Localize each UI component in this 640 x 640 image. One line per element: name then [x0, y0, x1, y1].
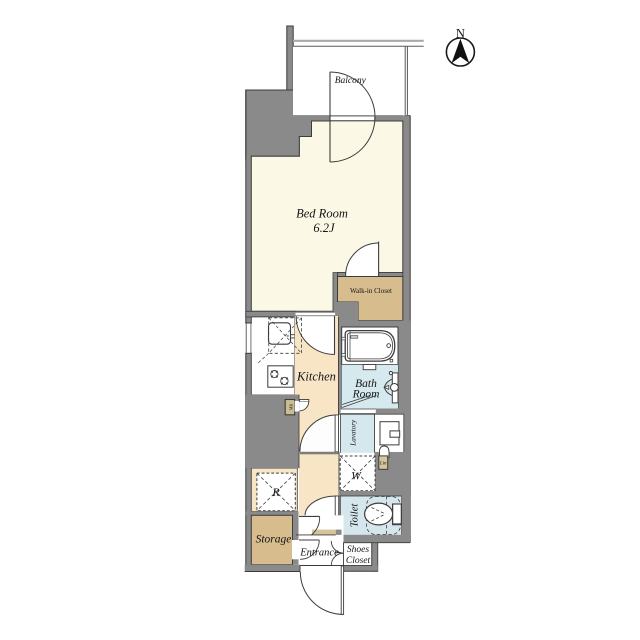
svg-text:R: R: [271, 485, 280, 499]
svg-text:Closet: Closet: [346, 556, 371, 566]
svg-text:Bed Room: Bed Room: [296, 207, 348, 221]
svg-text:Toilet: Toilet: [350, 503, 361, 528]
svg-text:Shoes: Shoes: [347, 545, 369, 555]
svg-text:N: N: [456, 27, 465, 41]
svg-text:W: W: [351, 471, 362, 483]
svg-text:Lavatory: Lavatory: [350, 419, 358, 447]
svg-text:Entrance: Entrance: [299, 548, 339, 559]
svg-text:Walk-in Closet: Walk-in Closet: [350, 287, 392, 295]
svg-text:Balcony: Balcony: [335, 76, 367, 86]
svg-text:Room: Room: [352, 389, 380, 401]
svg-text:Kitchen: Kitchen: [296, 370, 336, 384]
svg-text:6.2J: 6.2J: [313, 221, 336, 235]
svg-text:Storage: Storage: [256, 534, 292, 546]
svg-text:Lin: Lin: [379, 462, 387, 467]
svg-text:MB: MB: [289, 404, 294, 411]
